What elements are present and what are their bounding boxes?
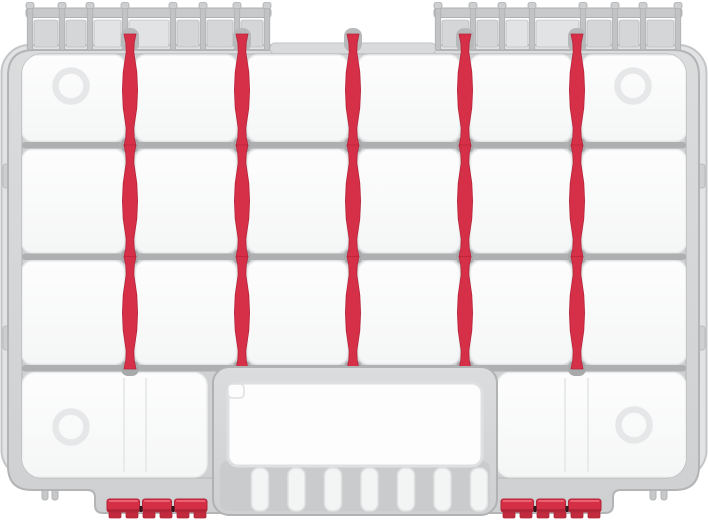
compartment xyxy=(136,55,237,141)
hinge-post xyxy=(59,5,65,50)
hinge-post xyxy=(435,5,441,50)
hinge-panel xyxy=(477,20,498,47)
hinge-post-cap xyxy=(639,3,647,9)
compartment xyxy=(248,55,348,141)
hinge-post-cap xyxy=(674,3,682,9)
hinge-post-cap xyxy=(263,3,271,9)
latch-foot xyxy=(126,512,138,518)
hinge-panel xyxy=(587,20,611,47)
latch-shadow xyxy=(143,509,171,512)
latch-highlight xyxy=(503,500,533,502)
hinge-panel xyxy=(619,20,639,47)
compartment xyxy=(136,261,237,364)
hinge-post-cap xyxy=(611,3,619,9)
latch-shadow xyxy=(175,509,207,512)
hinge-post-cap xyxy=(579,3,587,9)
compartment xyxy=(248,261,348,364)
latch-highlight xyxy=(176,500,206,502)
compartment-large xyxy=(497,373,686,478)
hinge-post-cap xyxy=(121,3,129,9)
hinge-post-cap xyxy=(169,3,177,9)
organizer-case xyxy=(0,0,708,520)
latch-highlight xyxy=(570,500,600,502)
grip-rib xyxy=(471,468,488,511)
hinge-panel xyxy=(66,20,86,47)
latch xyxy=(107,499,207,518)
hinge-post-cap xyxy=(86,3,94,9)
latch-shadow xyxy=(108,509,140,512)
compartment xyxy=(471,150,572,253)
latch xyxy=(501,499,601,518)
handle-opening xyxy=(228,383,482,466)
hinge-panel xyxy=(94,20,121,47)
grip-rib xyxy=(434,468,451,511)
grip-rib xyxy=(325,468,342,511)
latch-foot xyxy=(160,512,172,518)
hinge-post-cap xyxy=(58,3,66,9)
compartment xyxy=(583,150,687,253)
grip-rib xyxy=(288,468,305,511)
hinge-post-cap xyxy=(469,3,477,9)
latch-pin xyxy=(534,506,537,512)
latch-foot xyxy=(537,512,549,518)
latch-foot xyxy=(554,512,566,518)
latch-foot xyxy=(109,512,121,518)
latch-foot xyxy=(177,512,189,518)
hinge-panel xyxy=(34,20,58,47)
hinge-post-cap xyxy=(199,3,207,9)
hinge-panel xyxy=(207,20,233,47)
latch-pin xyxy=(172,506,175,512)
compartment xyxy=(471,261,572,364)
compartment xyxy=(359,55,460,141)
hinge-post xyxy=(612,5,618,50)
hinge-panel xyxy=(177,20,199,47)
handle-tab xyxy=(228,384,244,398)
hinge-post xyxy=(87,5,93,50)
compartment xyxy=(359,261,460,364)
hinge-post xyxy=(529,5,535,50)
hinge-post xyxy=(499,5,505,50)
hinge-post xyxy=(200,5,206,50)
hinge-panel xyxy=(506,20,528,47)
hinge-post-cap xyxy=(528,3,536,9)
latch-highlight xyxy=(144,500,170,502)
hinge-post xyxy=(264,5,270,50)
latch-foot xyxy=(588,512,600,518)
hinge-post xyxy=(170,5,176,50)
organizer-case-image: Gray plastic organizer case, top-down vi… xyxy=(0,0,708,520)
grip-rib xyxy=(252,468,269,511)
hinge-post-cap xyxy=(434,3,442,9)
compartment xyxy=(22,150,125,253)
hinge-post xyxy=(27,5,33,50)
hinge-post xyxy=(640,5,646,50)
latch-shadow xyxy=(537,509,565,512)
compartment xyxy=(136,150,237,253)
latch-pin xyxy=(566,506,569,512)
hinge-post xyxy=(675,5,681,50)
compartment xyxy=(583,261,687,364)
hinge-post-cap xyxy=(498,3,506,9)
latch-foot xyxy=(520,512,532,518)
latch-highlight xyxy=(109,500,139,502)
hinge-post-cap xyxy=(233,3,241,9)
compartment xyxy=(359,150,460,253)
hinge-post-cap xyxy=(26,3,34,9)
latch-foot xyxy=(503,512,515,518)
latch-shadow xyxy=(569,509,601,512)
latch-foot xyxy=(571,512,583,518)
latch-pin xyxy=(140,506,143,512)
compartment xyxy=(471,55,572,141)
hinge-panel xyxy=(647,20,674,47)
compartment xyxy=(22,261,125,364)
compartment-large xyxy=(22,373,207,478)
handle-recess xyxy=(213,367,497,515)
latch-highlight xyxy=(538,500,564,502)
grip-rib xyxy=(398,468,415,511)
latch-shadow xyxy=(502,509,534,512)
compartment xyxy=(248,150,348,253)
latch-foot xyxy=(194,512,206,518)
latch-foot xyxy=(143,512,155,518)
grip-rib xyxy=(361,468,378,511)
